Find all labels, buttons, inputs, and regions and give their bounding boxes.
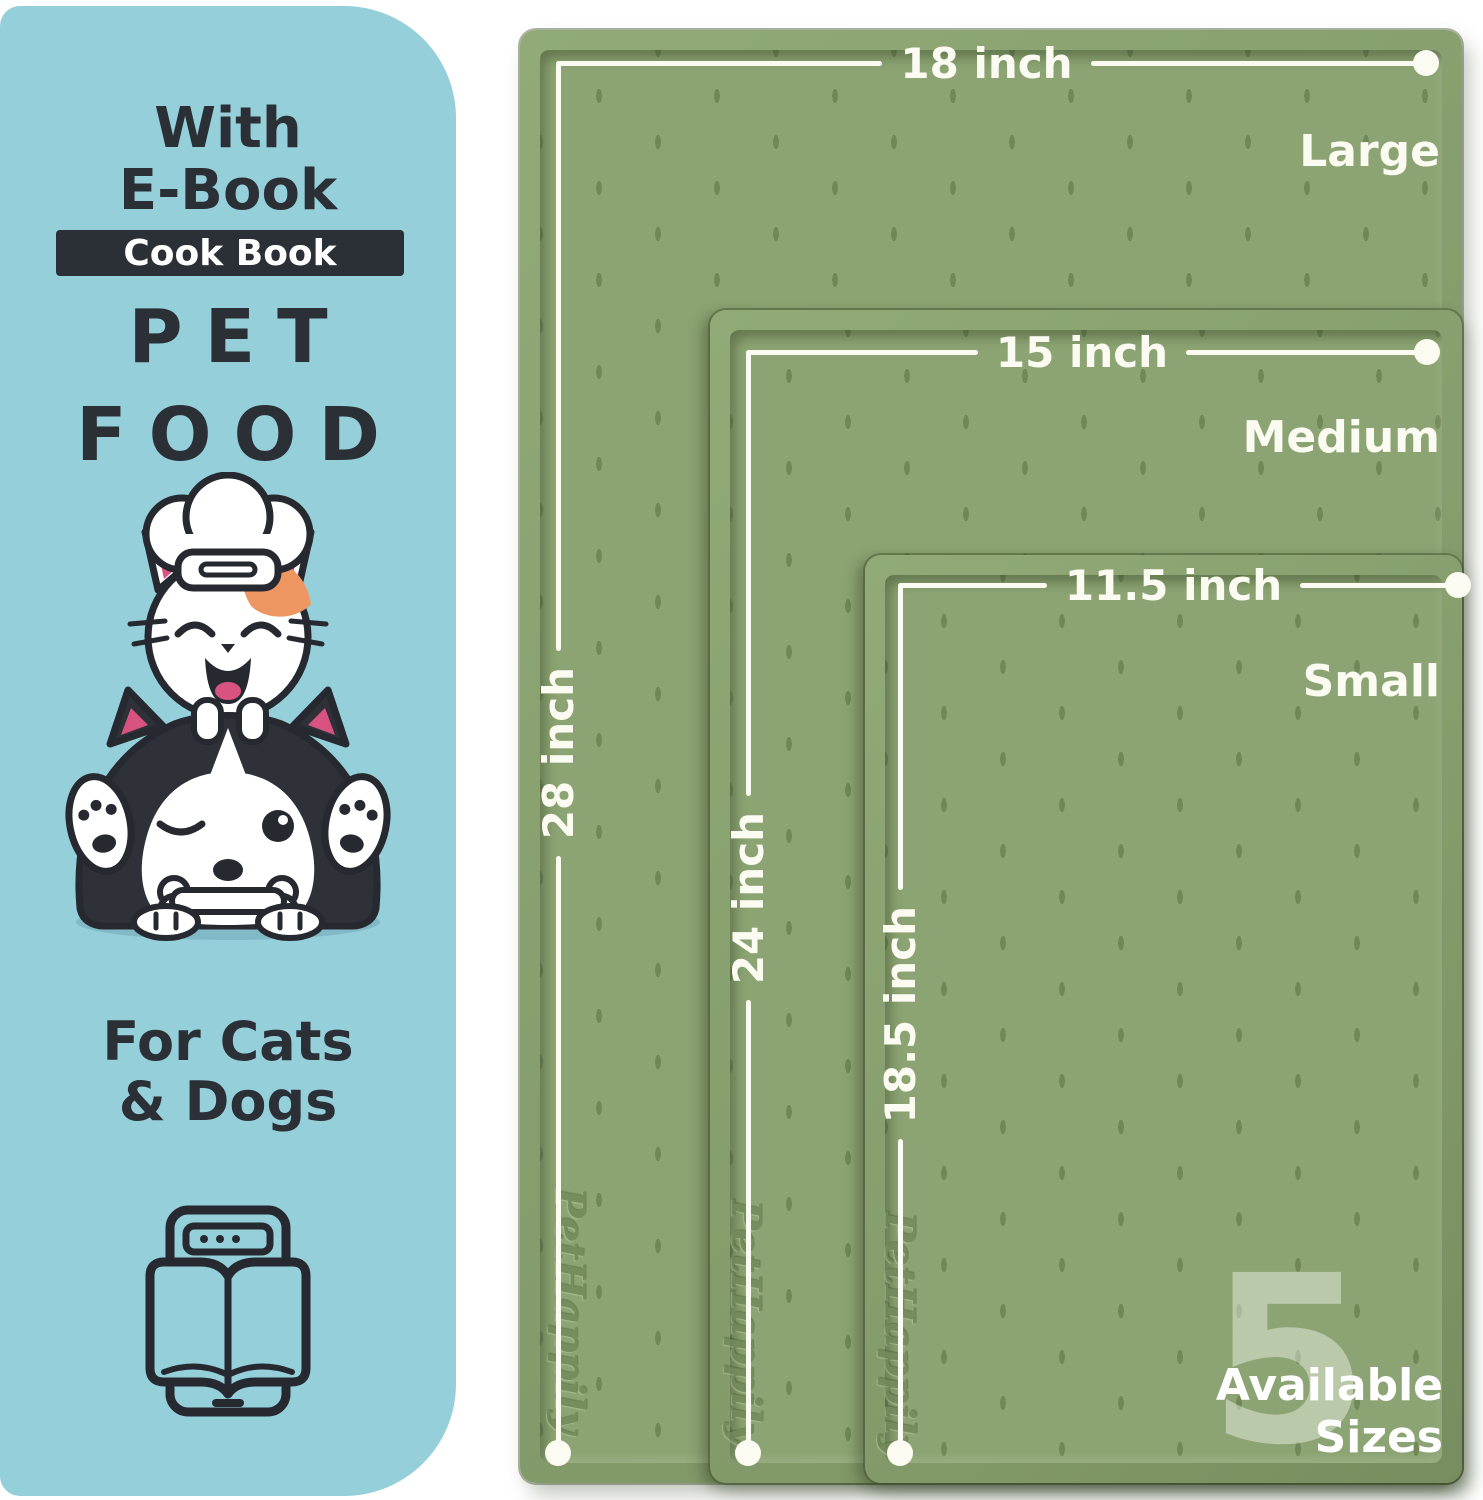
dimension-width-small-label: 11.5 inch bbox=[1065, 561, 1282, 610]
chef-cat-dog-illustration bbox=[48, 472, 412, 946]
dimension-line bbox=[556, 856, 561, 1444]
dimension-height-small-label: 18.5 inch bbox=[876, 906, 925, 1123]
dimension-width-large-label: 18 inch bbox=[900, 39, 1072, 88]
dimension-endpoint-dot bbox=[1413, 50, 1439, 76]
heading-line1: With bbox=[0, 98, 456, 160]
dimension-line bbox=[556, 63, 561, 651]
dimension-line bbox=[556, 61, 882, 66]
title-line1: PET bbox=[0, 288, 456, 386]
dimension-endpoint-dot bbox=[545, 1440, 571, 1466]
dimension-width-medium: 15 inch bbox=[746, 327, 1440, 377]
dimension-height-medium-label: 24 inch bbox=[724, 812, 773, 984]
info-panel: With E-Book Cook Book PET FOOD bbox=[0, 6, 456, 1496]
available-sizes-label: Available Sizes bbox=[1216, 1360, 1443, 1464]
dimension-line bbox=[1300, 583, 1449, 588]
dimension-endpoint-dot bbox=[735, 1440, 761, 1466]
dimension-width-small: 11.5 inch bbox=[898, 560, 1471, 610]
cookbook-badge: Cook Book bbox=[56, 230, 404, 276]
dimension-line bbox=[898, 585, 903, 890]
cookbook-badge-label: Cook Book bbox=[123, 233, 336, 274]
dimension-line bbox=[898, 1139, 903, 1444]
dimension-line bbox=[1091, 61, 1417, 66]
subtitle-line2: & Dogs bbox=[0, 1072, 456, 1132]
dimension-endpoint-dot bbox=[1414, 339, 1440, 365]
dimension-line bbox=[1186, 350, 1418, 355]
dimension-height-small: 18.5 inch bbox=[874, 585, 926, 1466]
dimension-line bbox=[746, 1000, 751, 1444]
heading-line2: E-Book bbox=[0, 160, 456, 222]
available-word: Available bbox=[1216, 1360, 1443, 1412]
dimension-endpoint-dot bbox=[1445, 572, 1471, 598]
dimension-width-large: 18 inch bbox=[556, 38, 1439, 88]
dimension-height-large: 28 inch bbox=[532, 63, 584, 1466]
ebook-tablet-icon bbox=[142, 1204, 314, 1418]
size-name-medium: Medium bbox=[1243, 412, 1440, 463]
dimension-endpoint-dot bbox=[887, 1440, 913, 1466]
dimension-height-medium: 24 inch bbox=[722, 352, 774, 1466]
sizes-word: Sizes bbox=[1216, 1412, 1443, 1464]
subtitle-line1: For Cats bbox=[0, 1012, 456, 1072]
size-name-large: Large bbox=[1299, 126, 1440, 177]
title-line2: FOOD bbox=[0, 386, 456, 484]
dimension-width-medium-label: 15 inch bbox=[996, 328, 1168, 377]
dimension-height-large-label: 28 inch bbox=[534, 667, 583, 839]
panel-title: PET FOOD bbox=[0, 288, 456, 484]
dimension-line bbox=[746, 352, 751, 796]
dimension-line bbox=[746, 350, 978, 355]
panel-heading: With E-Book bbox=[0, 98, 456, 222]
panel-subtitle: For Cats & Dogs bbox=[0, 1012, 456, 1132]
size-name-small: Small bbox=[1303, 656, 1440, 707]
